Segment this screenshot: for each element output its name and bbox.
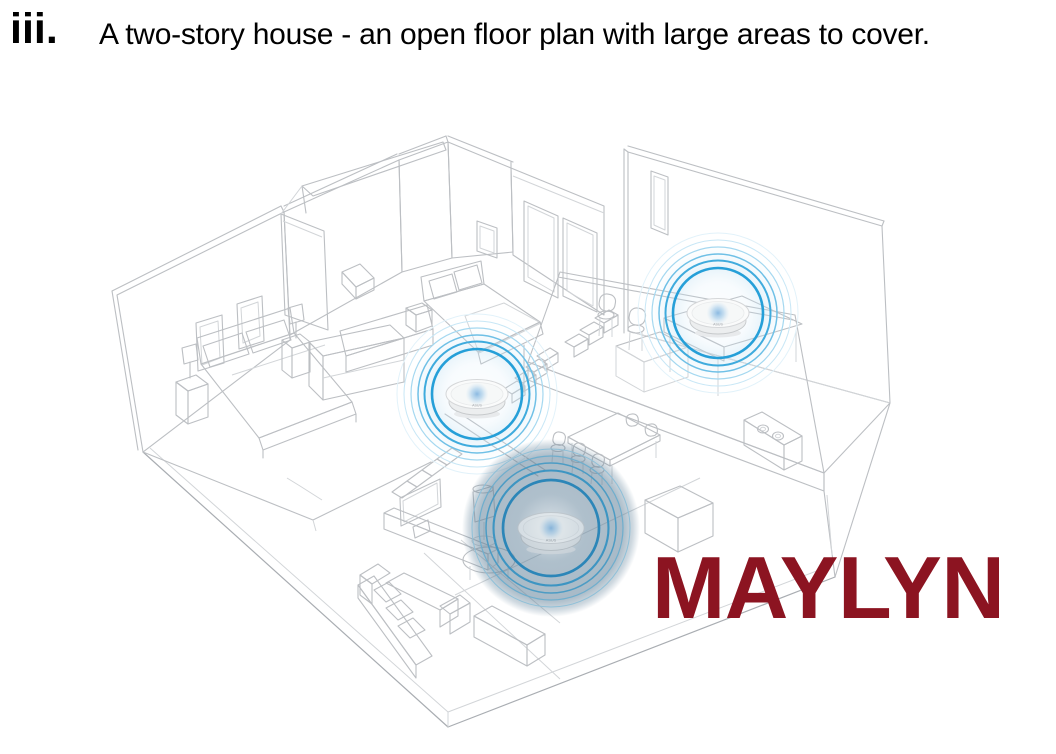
svg-text:ASUS: ASUS bbox=[713, 323, 723, 327]
svg-text:ASUS: ASUS bbox=[472, 404, 482, 408]
svg-text:ASUS: ASUS bbox=[546, 538, 557, 542]
